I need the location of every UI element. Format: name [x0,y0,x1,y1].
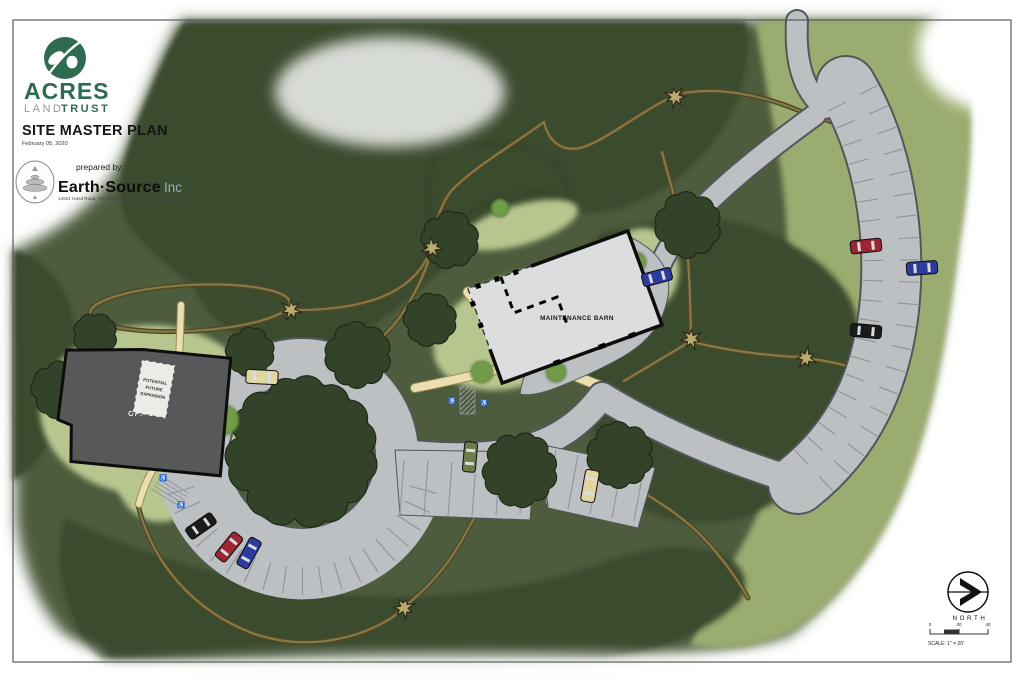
scale-bar-block [944,630,959,635]
org-trust: TRUST [61,103,110,115]
firm-phone: (260)489-8511 [152,196,182,201]
plan-title: SITE MASTER PLAN [22,123,168,139]
car-blue-east-lot [906,260,938,275]
plan-sheet: ♿ ♿ ♿ ♿ OFFICE POTENTIAL FUTURE EXPANSIO… [0,0,1024,683]
earthsource-logo [16,161,54,203]
acres-logo [44,37,86,79]
fade-title-halo [275,37,505,147]
maintenance-barn-label: MAINTENANCE BARN [540,315,614,322]
org-land: LAND [24,103,63,115]
accessible-parking-icon: ♿ [480,399,488,407]
scale-label: SCALE: 1" = 20' [928,641,964,647]
scale-tick-20: 20 [956,622,962,627]
firm-address: 14921 Hand Road, Fort Wayne, IN 46818 [58,196,143,201]
scale-tick-40: 40 [985,622,991,627]
scale-tick-0: 0 [929,622,932,627]
parking-stall-line [863,280,883,281]
accessible-parking-icon: ♿ [177,501,185,509]
shrub-bed [491,199,509,217]
prepared-by-label: prepared by: [76,162,124,172]
truck-tan-loop-road [246,369,279,385]
shrub-bed [471,361,493,383]
north-label: NORTH [953,615,988,622]
car-red-east-lot [850,238,882,254]
firm-name: Earth·Source [58,179,161,196]
parking-stall-line [899,282,919,283]
org-name: ACRES [24,78,110,104]
handicap-aisle [460,386,475,414]
car-olive-central [462,441,478,472]
car-black-east-lot [850,323,882,339]
accessible-parking-icon: ♿ [159,474,167,482]
firm-suffix: Inc [164,180,182,195]
acorn-icon [67,56,78,69]
accessible-parking-icon: ♿ [448,397,456,405]
site-plan-canvas: ♿ ♿ ♿ ♿ OFFICE POTENTIAL FUTURE EXPANSIO… [0,0,1024,683]
plan-date: February 05, 2020 [22,141,68,147]
